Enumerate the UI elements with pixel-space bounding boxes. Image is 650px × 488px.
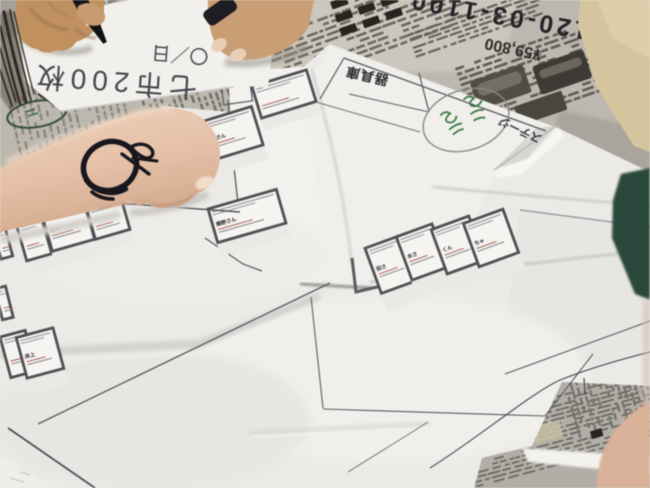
svg-text:〇／日: 〇／日 [151, 41, 209, 67]
